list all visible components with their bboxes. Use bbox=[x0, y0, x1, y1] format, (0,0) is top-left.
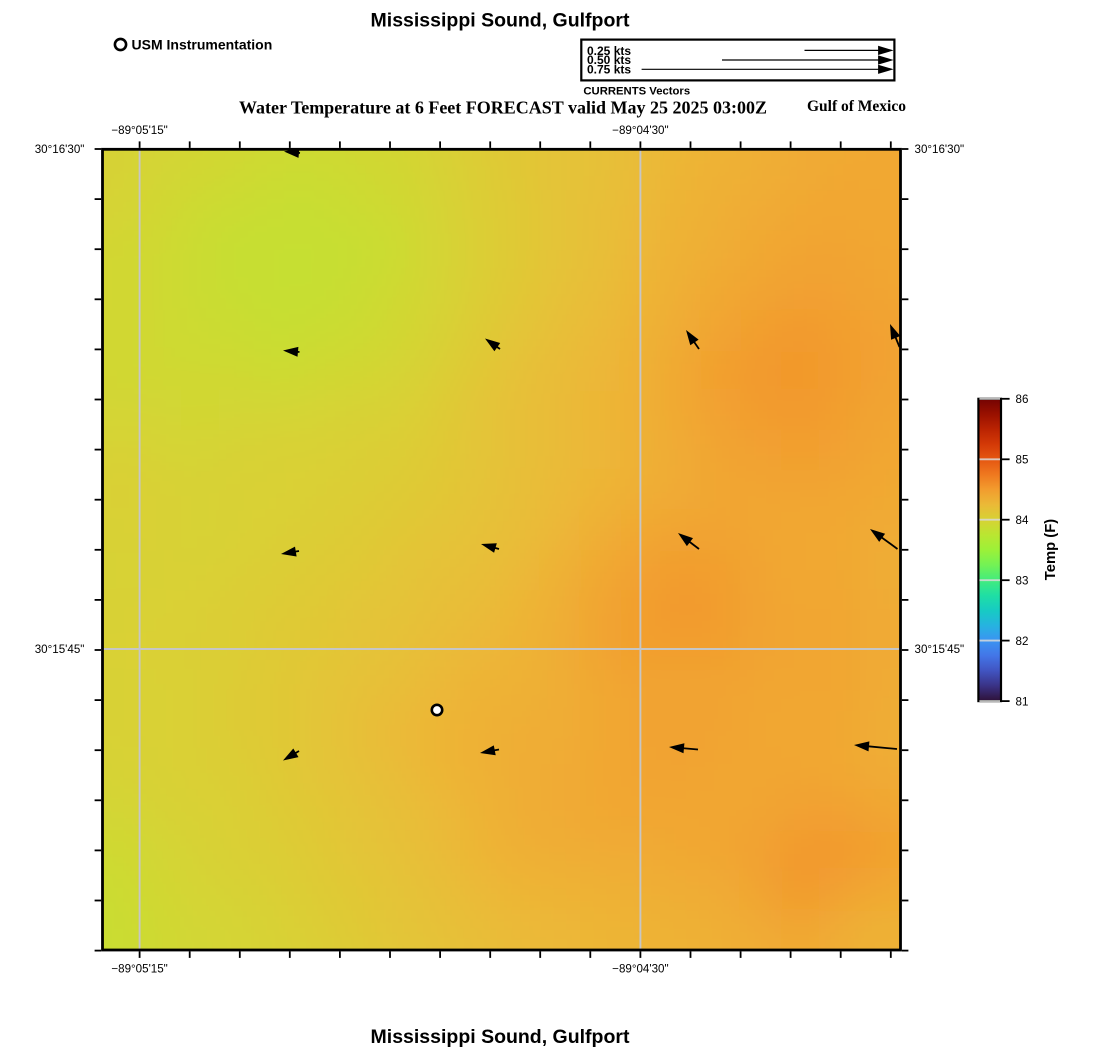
svg-text:82: 82 bbox=[1016, 635, 1029, 648]
svg-text:83: 83 bbox=[1016, 575, 1029, 588]
svg-text:84: 84 bbox=[1016, 514, 1029, 527]
svg-text:Mississippi Sound, Gulfport: Mississippi Sound, Gulfport bbox=[371, 10, 630, 32]
svg-text:85: 85 bbox=[1016, 454, 1029, 467]
svg-text:CURRENTS Vectors: CURRENTS Vectors bbox=[583, 86, 690, 98]
svg-text:86: 86 bbox=[1016, 393, 1029, 406]
svg-text:−89°05'15": −89°05'15" bbox=[111, 124, 167, 137]
svg-text:30°16'30": 30°16'30" bbox=[35, 143, 85, 156]
svg-text:USM Instrumentation: USM Instrumentation bbox=[132, 37, 273, 53]
svg-text:Temp (F): Temp (F) bbox=[1043, 519, 1059, 580]
svg-text:−89°04'30": −89°04'30" bbox=[612, 124, 668, 137]
svg-text:Gulf of Mexico: Gulf of Mexico bbox=[807, 98, 906, 115]
svg-text:−89°04'30": −89°04'30" bbox=[612, 963, 668, 976]
svg-text:0.75 kts: 0.75 kts bbox=[587, 63, 631, 77]
svg-text:30°16'30": 30°16'30" bbox=[915, 143, 965, 156]
svg-text:Mississippi Sound, Gulfport: Mississippi Sound, Gulfport bbox=[371, 1026, 630, 1048]
svg-text:30°15'45": 30°15'45" bbox=[915, 643, 965, 656]
svg-text:Water Temperature at 6 Feet FO: Water Temperature at 6 Feet FORECAST val… bbox=[239, 98, 767, 118]
svg-text:−89°05'15": −89°05'15" bbox=[111, 963, 167, 976]
svg-text:30°15'45": 30°15'45" bbox=[35, 643, 85, 656]
svg-text:81: 81 bbox=[1016, 695, 1029, 708]
